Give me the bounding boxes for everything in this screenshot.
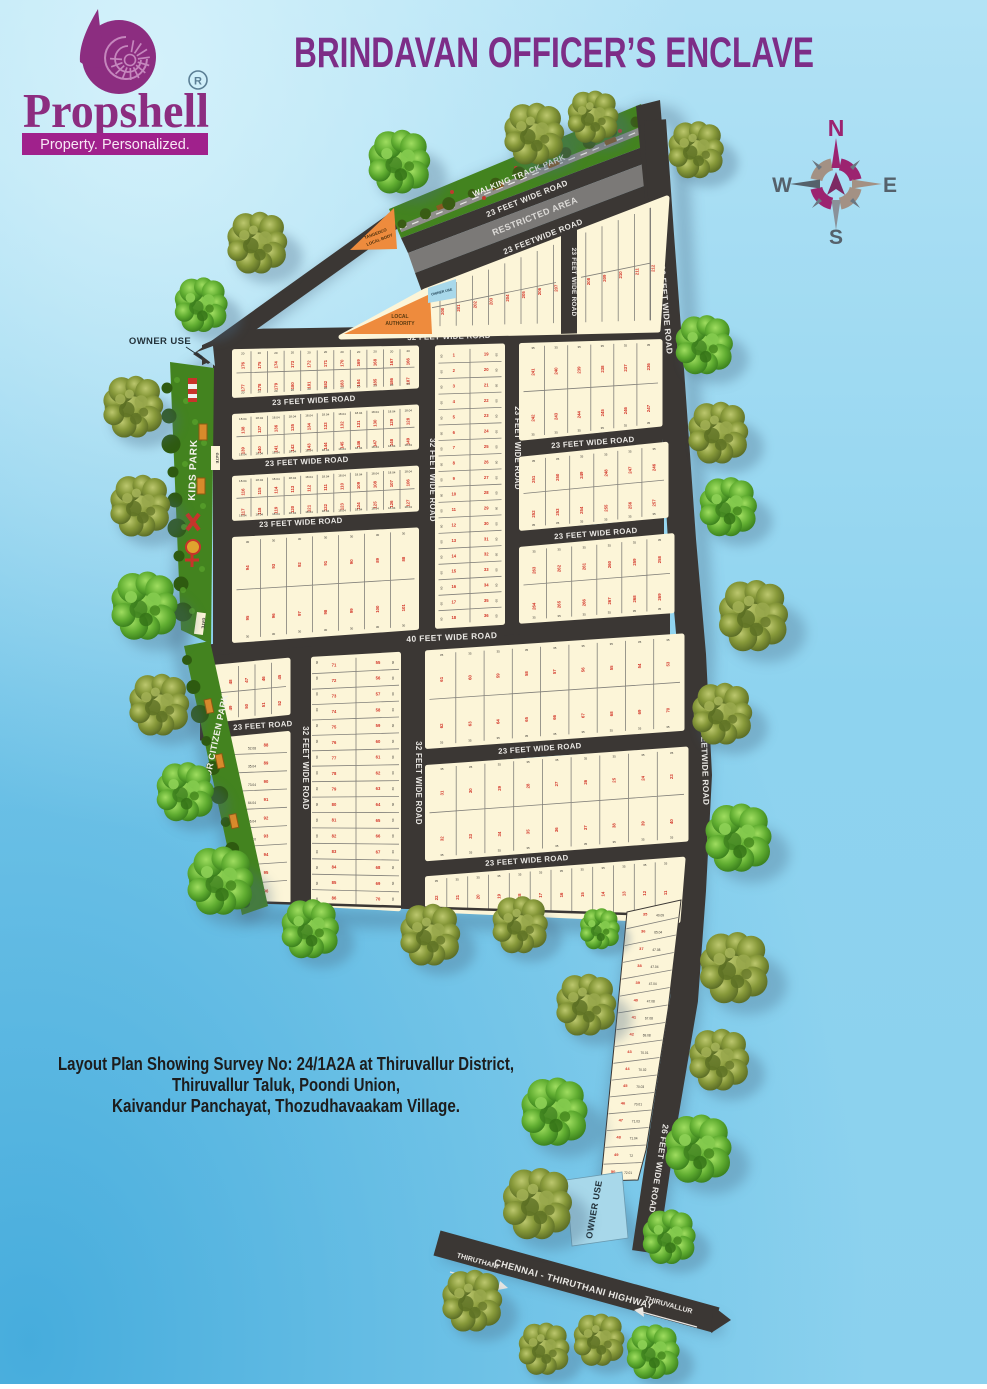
svg-text:15: 15 (451, 569, 456, 574)
svg-text:13: 13 (451, 538, 456, 543)
svg-text:20: 20 (390, 383, 394, 387)
svg-text:18.04: 18.04 (272, 415, 280, 419)
svg-text:246: 246 (623, 407, 628, 415)
svg-text:80: 80 (332, 802, 337, 807)
svg-text:81: 81 (332, 818, 337, 823)
svg-text:35.04: 35.04 (248, 765, 256, 769)
svg-text:20: 20 (357, 350, 361, 354)
svg-text:60: 60 (440, 494, 444, 498)
svg-text:16: 16 (451, 584, 456, 589)
svg-text:60: 60 (495, 460, 499, 464)
svg-text:18.04: 18.04 (272, 451, 280, 455)
svg-text:18.04: 18.04 (388, 471, 396, 475)
svg-text:35: 35 (633, 609, 637, 613)
svg-text:107: 107 (389, 480, 394, 488)
svg-text:60: 60 (440, 447, 444, 451)
svg-text:30: 30 (272, 538, 276, 542)
svg-text:60: 60 (391, 676, 395, 680)
svg-text:70.01: 70.01 (634, 1102, 642, 1106)
svg-text:79: 79 (332, 787, 337, 792)
svg-text:35: 35 (469, 851, 473, 855)
svg-text:59: 59 (496, 673, 501, 678)
svg-text:18.04: 18.04 (239, 479, 247, 483)
svg-text:40: 40 (669, 819, 674, 824)
svg-text:35: 35 (531, 346, 535, 350)
svg-text:112: 112 (307, 484, 312, 492)
svg-text:260: 260 (607, 560, 612, 568)
svg-text:237: 237 (623, 364, 628, 372)
svg-text:59: 59 (376, 723, 381, 728)
svg-text:60: 60 (315, 850, 319, 854)
svg-text:76: 76 (332, 740, 337, 745)
svg-text:60: 60 (495, 414, 499, 418)
svg-text:96: 96 (271, 613, 276, 618)
svg-text:243: 243 (554, 412, 559, 420)
svg-text:26: 26 (583, 779, 588, 784)
svg-text:172: 172 (307, 360, 312, 368)
svg-text:91: 91 (323, 560, 328, 565)
svg-text:18.04: 18.04 (388, 506, 396, 510)
svg-text:168: 168 (373, 358, 378, 366)
svg-text:35: 35 (578, 345, 582, 349)
svg-text:60: 60 (467, 675, 472, 680)
svg-text:35: 35 (604, 452, 608, 456)
svg-text:166: 166 (406, 358, 411, 366)
svg-text:30: 30 (376, 533, 380, 537)
svg-text:75: 75 (332, 725, 337, 730)
svg-text:93: 93 (271, 563, 276, 568)
svg-text:18.04: 18.04 (355, 411, 363, 415)
svg-text:49: 49 (228, 705, 233, 710)
svg-text:30: 30 (298, 537, 302, 541)
svg-text:18.04: 18.04 (322, 413, 330, 417)
svg-text:200: 200 (440, 307, 445, 315)
svg-text:212: 212 (651, 264, 656, 272)
svg-text:12: 12 (451, 522, 456, 527)
svg-text:35: 35 (647, 421, 651, 425)
svg-text:35: 35 (658, 538, 662, 542)
svg-text:60: 60 (391, 724, 395, 728)
svg-text:30: 30 (246, 635, 250, 639)
svg-text:60: 60 (495, 614, 499, 618)
svg-text:35: 35 (557, 547, 561, 551)
svg-text:20: 20 (241, 391, 245, 395)
svg-text:18.04: 18.04 (388, 409, 396, 413)
svg-text:58: 58 (376, 707, 381, 712)
svg-text:35: 35 (469, 765, 473, 769)
svg-text:240: 240 (554, 367, 559, 375)
svg-text:60: 60 (495, 583, 499, 587)
svg-text:60: 60 (440, 509, 444, 513)
svg-text:60: 60 (391, 881, 395, 885)
svg-text:41: 41 (632, 1015, 637, 1020)
svg-text:32 FEET WIDE ROAD: 32 FEET WIDE ROAD (301, 726, 310, 810)
svg-text:35: 35 (601, 344, 605, 348)
svg-text:66: 66 (552, 714, 557, 719)
svg-text:210: 210 (618, 271, 623, 279)
svg-text:38: 38 (637, 963, 642, 968)
svg-text:52: 52 (277, 700, 282, 705)
svg-text:60: 60 (440, 416, 444, 420)
svg-text:66: 66 (376, 834, 381, 839)
svg-text:241: 241 (531, 368, 536, 376)
svg-text:98: 98 (323, 609, 328, 614)
svg-text:35: 35 (435, 879, 439, 883)
svg-text:82: 82 (332, 833, 337, 838)
svg-text:60: 60 (315, 834, 319, 838)
svg-text:35: 35 (581, 868, 585, 872)
svg-text:60: 60 (495, 353, 499, 357)
svg-text:60: 60 (495, 445, 499, 449)
svg-text:34: 34 (484, 583, 489, 588)
svg-text:35: 35 (532, 616, 536, 620)
svg-text:40.09: 40.09 (656, 914, 664, 918)
svg-text:203: 203 (489, 297, 494, 305)
svg-text:60: 60 (495, 399, 499, 403)
svg-text:259: 259 (632, 558, 637, 566)
svg-text:35: 35 (658, 607, 662, 611)
svg-text:60: 60 (440, 432, 444, 436)
svg-text:106: 106 (406, 479, 411, 487)
svg-text:18.04: 18.04 (305, 449, 313, 453)
svg-text:20: 20 (324, 386, 328, 390)
svg-text:21: 21 (455, 894, 460, 899)
svg-text:20: 20 (390, 349, 394, 353)
svg-text:175: 175 (257, 361, 262, 369)
svg-text:262: 262 (557, 564, 562, 572)
svg-text:257: 257 (652, 499, 657, 507)
svg-text:27: 27 (484, 475, 489, 480)
svg-text:253: 253 (555, 508, 560, 516)
svg-text:252: 252 (531, 510, 536, 518)
svg-text:256: 256 (627, 501, 632, 509)
svg-text:18.04: 18.04 (322, 474, 330, 478)
svg-text:91: 91 (264, 797, 269, 802)
svg-text:28: 28 (526, 783, 531, 788)
svg-text:109: 109 (356, 481, 361, 489)
svg-text:67: 67 (376, 849, 381, 854)
svg-text:67.08: 67.08 (645, 1017, 653, 1021)
svg-text:65: 65 (524, 716, 529, 721)
svg-text:46: 46 (621, 1100, 626, 1105)
svg-text:18.04: 18.04 (305, 510, 313, 514)
svg-text:35: 35 (647, 343, 651, 347)
svg-text:21: 21 (484, 382, 489, 387)
svg-text:60: 60 (495, 430, 499, 434)
svg-text:24: 24 (484, 429, 489, 434)
svg-text:35: 35 (613, 840, 617, 844)
svg-text:35: 35 (532, 523, 536, 527)
svg-text:173: 173 (290, 360, 295, 368)
svg-text:247: 247 (627, 466, 632, 474)
svg-text:OWNER USE: OWNER USE (129, 336, 191, 347)
svg-text:60: 60 (440, 478, 444, 482)
svg-text:85: 85 (332, 880, 337, 885)
svg-text:35: 35 (580, 455, 584, 459)
svg-text:60: 60 (376, 739, 381, 744)
svg-text:55: 55 (376, 660, 381, 665)
svg-text:GATE: GATE (215, 453, 220, 464)
svg-text:18.04: 18.04 (272, 512, 280, 516)
svg-text:36: 36 (484, 613, 489, 618)
svg-text:108: 108 (373, 480, 378, 488)
svg-text:60: 60 (391, 755, 395, 759)
svg-text:60: 60 (440, 617, 444, 621)
svg-text:72: 72 (332, 678, 337, 683)
svg-text:28: 28 (484, 490, 489, 495)
svg-text:35: 35 (641, 838, 645, 842)
svg-text:18.04: 18.04 (404, 505, 412, 509)
svg-text:18.04: 18.04 (322, 509, 330, 513)
svg-text:18.04: 18.04 (256, 513, 264, 517)
svg-text:18.04: 18.04 (338, 473, 346, 477)
svg-text:254: 254 (579, 506, 584, 514)
svg-text:266: 266 (582, 599, 587, 607)
svg-text:60: 60 (391, 803, 395, 807)
svg-text:205: 205 (521, 291, 526, 299)
svg-text:35: 35 (608, 543, 612, 547)
svg-text:18.04: 18.04 (371, 507, 379, 511)
svg-text:60: 60 (440, 524, 444, 528)
svg-text:116: 116 (240, 488, 245, 496)
svg-text:72.01: 72.01 (624, 1171, 632, 1175)
svg-text:170: 170 (340, 359, 345, 367)
svg-text:35: 35 (608, 611, 612, 615)
svg-text:74: 74 (332, 709, 337, 714)
svg-text:35: 35 (525, 734, 529, 738)
svg-text:64: 64 (376, 802, 381, 807)
svg-text:35: 35 (584, 842, 588, 846)
svg-text:265: 265 (557, 600, 562, 608)
svg-text:30: 30 (324, 536, 328, 540)
svg-text:20: 20 (340, 385, 344, 389)
svg-text:95: 95 (264, 870, 269, 875)
svg-text:32: 32 (439, 836, 444, 841)
svg-text:Kaivandur Panchayat, Thozudhav: Kaivandur Panchayat, Thozudhavaakam Vill… (112, 1096, 460, 1116)
svg-text:AUTHORITY: AUTHORITY (385, 321, 415, 327)
svg-text:18.04: 18.04 (256, 452, 264, 456)
svg-text:35: 35 (440, 653, 444, 657)
svg-text:138: 138 (240, 426, 245, 434)
svg-text:35: 35 (456, 877, 460, 881)
svg-text:35: 35 (604, 517, 608, 521)
svg-text:35: 35 (526, 760, 530, 764)
svg-text:69: 69 (376, 881, 381, 886)
svg-text:20: 20 (291, 351, 295, 355)
svg-text:61: 61 (439, 676, 444, 681)
svg-text:S: S (829, 226, 843, 249)
svg-text:35: 35 (624, 344, 628, 348)
svg-text:30: 30 (402, 624, 406, 628)
svg-text:20: 20 (357, 385, 361, 389)
svg-text:47.08: 47.08 (647, 999, 655, 1003)
svg-text:18.04: 18.04 (256, 478, 264, 482)
svg-text:30: 30 (484, 521, 489, 526)
svg-text:20: 20 (291, 388, 295, 392)
svg-text:46: 46 (261, 676, 266, 681)
svg-text:201: 201 (456, 304, 461, 312)
svg-text:52.08: 52.08 (248, 746, 256, 750)
svg-text:18.04: 18.04 (371, 471, 379, 475)
svg-text:18.04: 18.04 (338, 447, 346, 451)
svg-text:35: 35 (440, 767, 444, 771)
svg-text:18.04: 18.04 (355, 508, 363, 512)
svg-text:60: 60 (440, 540, 444, 544)
svg-text:39: 39 (635, 980, 640, 985)
svg-text:35: 35 (581, 644, 585, 648)
svg-text:61: 61 (376, 755, 381, 760)
svg-text:18.04: 18.04 (289, 414, 297, 418)
svg-text:35: 35 (440, 741, 444, 745)
svg-text:35: 35 (583, 546, 587, 550)
svg-text:35: 35 (497, 874, 501, 878)
svg-text:65.04: 65.04 (654, 931, 662, 935)
svg-text:71.03: 71.03 (632, 1120, 640, 1124)
svg-text:35: 35 (555, 758, 559, 762)
svg-text:242: 242 (531, 414, 536, 422)
svg-text:22: 22 (484, 398, 489, 403)
svg-text:128: 128 (406, 417, 411, 425)
svg-text:70.02: 70.02 (638, 1068, 646, 1072)
svg-text:60: 60 (391, 818, 395, 822)
svg-text:90: 90 (349, 559, 354, 564)
svg-text:16: 16 (559, 892, 564, 897)
svg-text:35: 35 (638, 640, 642, 644)
svg-text:169: 169 (356, 359, 361, 367)
svg-text:18: 18 (451, 615, 456, 620)
svg-text:35: 35 (652, 512, 656, 516)
svg-text:20: 20 (407, 349, 411, 353)
svg-text:19: 19 (496, 893, 501, 898)
svg-text:246: 246 (652, 463, 657, 471)
svg-text:167: 167 (389, 358, 394, 366)
svg-text:60: 60 (495, 553, 499, 557)
svg-text:30: 30 (402, 532, 406, 536)
svg-text:GATE: GATE (201, 618, 207, 630)
svg-text:114: 114 (273, 486, 278, 494)
svg-text:94: 94 (264, 852, 269, 857)
svg-text:Thiruvallur Taluk, Poondi Unio: Thiruvallur Taluk, Poondi Union, (172, 1075, 400, 1095)
svg-text:60: 60 (315, 866, 319, 870)
svg-text:57: 57 (376, 692, 381, 697)
svg-text:94: 94 (245, 565, 250, 570)
svg-text:35: 35 (556, 457, 560, 461)
svg-text:174: 174 (273, 361, 278, 369)
svg-text:130: 130 (373, 419, 378, 427)
svg-text:55: 55 (609, 665, 614, 670)
svg-text:110: 110 (340, 482, 345, 490)
svg-text:35: 35 (624, 424, 628, 428)
svg-text:35: 35 (610, 728, 614, 732)
svg-text:20: 20 (484, 367, 489, 372)
svg-text:65: 65 (376, 818, 381, 823)
svg-text:35: 35 (666, 638, 670, 642)
svg-text:111: 111 (323, 483, 328, 490)
svg-text:47.04: 47.04 (651, 965, 659, 969)
svg-text:20: 20 (324, 350, 328, 354)
svg-text:30: 30 (298, 630, 302, 634)
svg-text:22: 22 (434, 895, 439, 900)
svg-text:35: 35 (532, 549, 536, 553)
svg-text:88: 88 (401, 556, 406, 561)
svg-text:90: 90 (264, 779, 269, 784)
svg-text:202: 202 (472, 301, 477, 309)
svg-text:31: 31 (439, 790, 444, 795)
svg-text:129: 129 (389, 418, 394, 426)
svg-text:35: 35 (526, 829, 531, 834)
svg-text:60: 60 (315, 803, 319, 807)
svg-text:251: 251 (531, 475, 536, 483)
svg-text:30: 30 (324, 628, 328, 632)
svg-text:35: 35 (468, 738, 472, 742)
svg-text:30: 30 (350, 534, 354, 538)
svg-text:20: 20 (274, 389, 278, 393)
svg-text:45: 45 (277, 674, 282, 679)
svg-text:60: 60 (495, 599, 499, 603)
svg-text:35: 35 (532, 459, 536, 463)
svg-text:60: 60 (315, 771, 319, 775)
svg-text:60: 60 (391, 897, 395, 901)
svg-text:35: 35 (638, 727, 642, 731)
svg-text:25: 25 (612, 777, 617, 782)
svg-text:35: 35 (498, 848, 502, 852)
svg-text:72: 72 (629, 1154, 633, 1158)
svg-text:132: 132 (340, 421, 345, 429)
svg-text:250: 250 (555, 473, 560, 481)
svg-text:35: 35 (578, 428, 582, 432)
svg-text:30: 30 (246, 540, 250, 544)
svg-text:50: 50 (244, 703, 249, 708)
svg-text:35: 35 (610, 642, 614, 646)
svg-text:35: 35 (553, 646, 557, 650)
svg-text:18.04: 18.04 (289, 511, 297, 515)
svg-text:35: 35 (643, 912, 648, 917)
svg-text:263: 263 (532, 566, 537, 574)
svg-text:88: 88 (264, 742, 269, 747)
svg-text:137: 137 (257, 425, 262, 433)
svg-text:68: 68 (609, 711, 614, 716)
svg-text:53: 53 (665, 661, 670, 666)
svg-text:35: 35 (628, 515, 632, 519)
svg-text:23: 23 (669, 774, 674, 779)
svg-text:BRINDAVAN OFFICER’S ENCLAVE: BRINDAVAN OFFICER’S ENCLAVE (294, 29, 814, 77)
svg-text:70.01: 70.01 (641, 1051, 649, 1055)
svg-text:60: 60 (440, 401, 444, 405)
svg-text:40: 40 (634, 997, 639, 1002)
svg-text:95: 95 (245, 615, 250, 620)
svg-text:32 FEET WIDE ROAD: 32 FEET WIDE ROAD (414, 741, 423, 825)
svg-text:18.04: 18.04 (338, 412, 346, 416)
svg-text:25: 25 (484, 444, 489, 449)
svg-text:245: 245 (600, 409, 605, 417)
svg-text:239: 239 (577, 366, 582, 374)
svg-text:18.04: 18.04 (404, 409, 412, 413)
svg-text:35: 35 (664, 862, 668, 866)
svg-text:35: 35 (468, 651, 472, 655)
svg-text:18.04: 18.04 (239, 417, 247, 421)
svg-text:211: 211 (634, 268, 639, 276)
svg-text:35: 35 (557, 614, 561, 618)
svg-text:18.04: 18.04 (404, 470, 412, 474)
svg-text:131: 131 (356, 420, 361, 428)
svg-text:18.04: 18.04 (289, 450, 297, 454)
svg-text:35: 35 (518, 872, 522, 876)
svg-text:29: 29 (484, 506, 489, 511)
svg-text:35: 35 (613, 755, 617, 759)
svg-text:60: 60 (315, 755, 319, 759)
svg-text:60: 60 (315, 881, 319, 885)
svg-text:17: 17 (451, 600, 456, 605)
